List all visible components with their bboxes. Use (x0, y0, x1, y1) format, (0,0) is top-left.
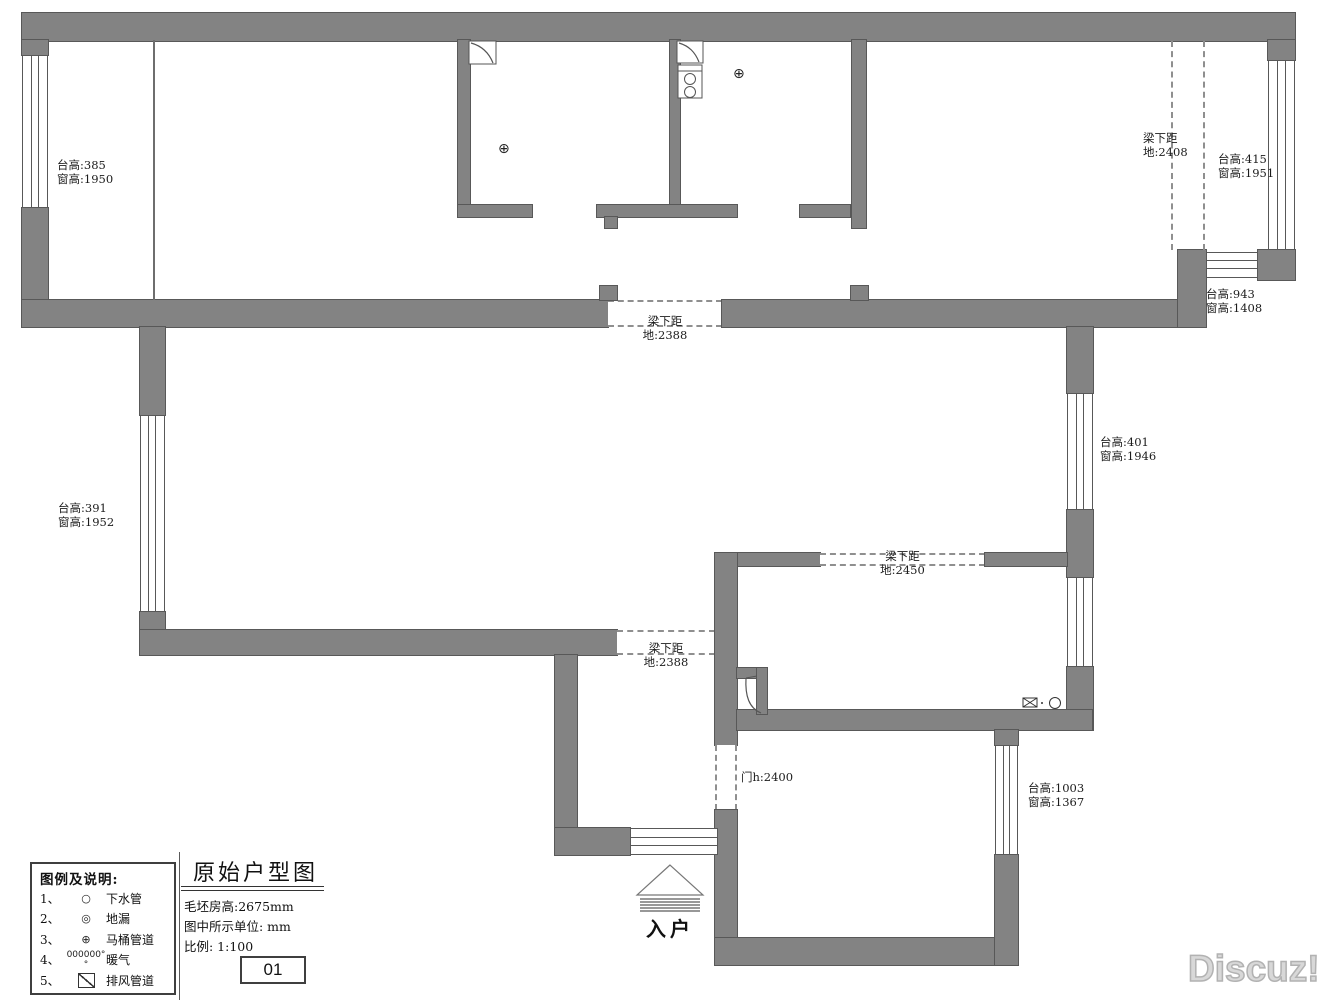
info-units: 图中所示单位: mm (184, 916, 291, 935)
wall-segment (985, 553, 1067, 566)
drain-pipe-icon: ○ (66, 892, 106, 905)
partition-line (153, 40, 155, 300)
wall-stub (851, 286, 868, 300)
wall-segment (715, 553, 737, 745)
wall-segment (555, 828, 630, 855)
window (1067, 577, 1093, 667)
window (22, 55, 48, 208)
beam-dash-line (1203, 41, 1205, 250)
titleblock-divider (179, 852, 180, 1000)
wall-segment (737, 553, 820, 566)
wall-segment (22, 300, 608, 327)
info-scale: 比例: 1:100 (184, 936, 253, 955)
wall-segment (1268, 40, 1295, 60)
entrance-marker (634, 862, 706, 914)
label-window-bottomright: 台高:1003 窗高:1367 (1028, 781, 1084, 809)
door-arc-icon (735, 666, 771, 718)
label-window-bay: 台高:943 窗高:1408 (1206, 287, 1262, 315)
window (1206, 252, 1258, 278)
entrance-label: 入户 (634, 913, 706, 942)
radiator-and-drain-icons (1022, 694, 1066, 712)
wall-segment (458, 205, 532, 217)
info-ceiling-height: 毛坯房高:2675mm (184, 896, 294, 915)
wall-segment (1067, 510, 1093, 577)
wall-segment (1178, 250, 1206, 327)
watermark: Discuz! (1188, 948, 1318, 990)
floorplan-canvas: ⊕ ⊕ 入户 台高:385 窗高:1950 梁下距 地:2408 台高:415 … (0, 0, 1318, 1000)
title-underline (181, 886, 324, 891)
legend-item-heating: 4、 000000°° 暖气 (40, 950, 174, 971)
legend-box: 图例及说明: 1、 ○ 下水管 2、 ◎ 地漏 3、 ⊕ 马桶管道 4、 000… (30, 862, 176, 995)
label-window-topright: 台高:415 窗高:1951 (1218, 152, 1274, 180)
label-beam-2450: 梁下距 地:2450 (820, 549, 985, 577)
wall-segment (140, 327, 165, 415)
legend-item-duct: 5、 排风管道 (40, 970, 174, 991)
wall-segment (995, 730, 1018, 745)
wall-segment (1067, 327, 1093, 393)
entrance-door-opening (630, 828, 718, 855)
legend-item-floordrain: 2、 ◎ 地漏 (40, 909, 174, 930)
wall-segment (852, 40, 866, 228)
legend-item-drain: 1、 ○ 下水管 (40, 888, 174, 909)
wall-segment (800, 205, 850, 217)
exhaust-duct-icon (468, 40, 498, 66)
label-window-topleft: 台高:385 窗高:1950 (57, 158, 113, 186)
label-beam-middle: 梁下距 地:2388 (608, 314, 722, 342)
wall-stub (600, 286, 617, 300)
wall-segment (555, 655, 577, 828)
window (1067, 393, 1093, 510)
window (140, 415, 165, 612)
heating-icon: 000000°° (66, 950, 106, 970)
wall-segment (715, 938, 1018, 965)
window (995, 745, 1018, 855)
label-beam-2388-lower: 梁下距 地:2388 (617, 641, 715, 669)
floor-drain-icon: ◎ (66, 912, 106, 925)
label-beam-topright: 梁下距 地:2408 (1143, 131, 1188, 159)
toilet-pipe-icon: ⊕ (733, 67, 745, 81)
stove-with-duct-icon (676, 40, 706, 100)
wall-segment (1258, 250, 1295, 280)
wall-segment (737, 710, 1092, 730)
wall-segment (597, 205, 737, 217)
exhaust-duct-icon (78, 973, 95, 988)
wall-segment (722, 300, 1206, 327)
label-window-right: 台高:401 窗高:1946 (1100, 435, 1156, 463)
drawing-title: 原始户型图 (193, 855, 318, 887)
toilet-pipe-icon: ⊕ (498, 142, 510, 156)
sheet-number: 01 (240, 956, 306, 984)
label-door-height: 门h:2400 (741, 770, 793, 784)
wall-segment (22, 13, 1295, 41)
wall-stub (605, 217, 617, 228)
wall-segment (995, 855, 1018, 965)
legend-title: 图例及说明: (40, 868, 174, 888)
wall-segment (22, 40, 48, 55)
toilet-pipe-icon: ⊕ (66, 933, 106, 946)
legend-item-toilet: 3、 ⊕ 马桶管道 (40, 929, 174, 950)
wall-segment (140, 630, 617, 655)
door-opening-dashed (715, 745, 737, 810)
label-window-left: 台高:391 窗高:1952 (58, 501, 114, 529)
